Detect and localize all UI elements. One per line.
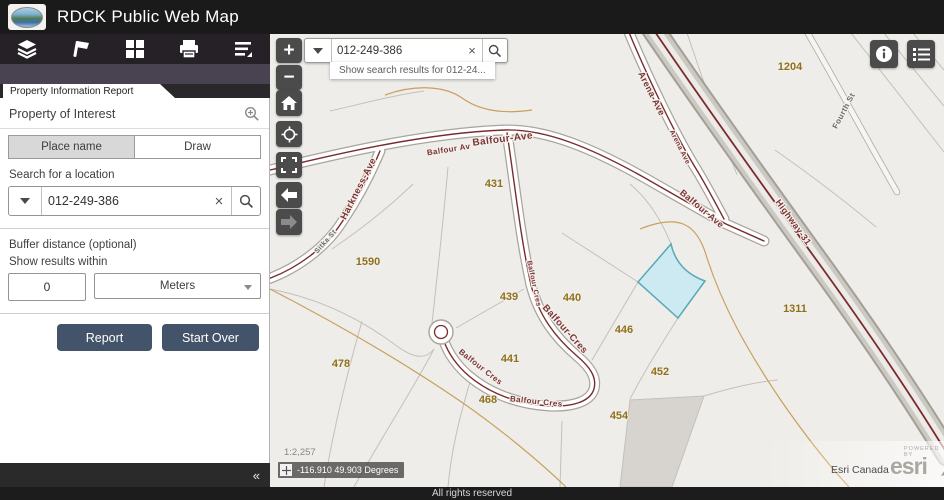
location-searchbox: × bbox=[8, 186, 261, 216]
mode-tabs: Place name Draw bbox=[8, 135, 261, 159]
previous-extent-button[interactable] bbox=[276, 182, 302, 208]
zoom-to-icon[interactable] bbox=[244, 106, 260, 122]
svg-text:454: 454 bbox=[610, 410, 629, 422]
draw-button[interactable] bbox=[64, 36, 98, 62]
caret-down-icon bbox=[20, 198, 30, 204]
basemap-button[interactable] bbox=[118, 36, 152, 62]
units-select[interactable]: Meters bbox=[94, 273, 261, 299]
back-arrow-icon bbox=[281, 188, 297, 202]
basemap-grid-icon bbox=[124, 38, 146, 60]
list-icon bbox=[913, 47, 930, 62]
rdck-logo bbox=[8, 4, 46, 30]
svg-text:440: 440 bbox=[563, 292, 581, 304]
copyright-footer: All rights reserved bbox=[0, 487, 944, 500]
svg-text:478: 478 bbox=[332, 358, 350, 370]
app-title: RDCK Public Web Map bbox=[57, 7, 239, 27]
svg-text:441: 441 bbox=[501, 353, 519, 365]
section-title: Property of Interest bbox=[9, 107, 115, 121]
forward-arrow-icon bbox=[281, 215, 297, 229]
search-icon bbox=[488, 44, 502, 58]
info-icon bbox=[875, 45, 893, 63]
search-source-dropdown[interactable] bbox=[9, 187, 42, 215]
home-button[interactable] bbox=[276, 90, 302, 116]
svg-text:1311: 1311 bbox=[783, 303, 807, 315]
map-search-input[interactable] bbox=[332, 39, 462, 62]
panel-tabbar: Property Information Report bbox=[0, 84, 270, 98]
search-submit-button[interactable] bbox=[231, 187, 260, 215]
map-search-dropdown[interactable] bbox=[305, 39, 332, 62]
units-value: Meters bbox=[160, 280, 195, 292]
panel-tab-property-information-report[interactable]: Property Information Report bbox=[3, 84, 175, 98]
map-clear-search-icon[interactable]: × bbox=[462, 39, 482, 62]
rdck-emblem-icon bbox=[11, 7, 43, 28]
tab-draw-label: Draw bbox=[184, 141, 211, 153]
tab-place-name-label: Place name bbox=[41, 141, 102, 153]
fullscreen-icon bbox=[281, 157, 297, 173]
zoom-out-button[interactable]: − bbox=[276, 65, 302, 90]
locate-icon bbox=[281, 126, 298, 143]
fullscreen-button[interactable] bbox=[276, 152, 302, 178]
report-button[interactable]: Report bbox=[57, 324, 152, 351]
svg-text:1204: 1204 bbox=[778, 61, 803, 73]
search-icon bbox=[239, 194, 254, 209]
results-label: Show results within bbox=[9, 256, 260, 268]
caret-down-icon bbox=[313, 48, 323, 54]
esri-cursor-icon bbox=[939, 465, 944, 476]
map-canvas[interactable]: Balfour-AveBalfour AvHarkness-AveSitka S… bbox=[270, 34, 944, 487]
divider bbox=[0, 313, 269, 314]
map-searchbox: × bbox=[304, 38, 508, 63]
home-icon bbox=[281, 96, 297, 111]
svg-text:439: 439 bbox=[500, 291, 518, 303]
svg-text:452: 452 bbox=[651, 366, 669, 378]
coordinate-readout: -116.910 49.903 Degrees bbox=[297, 465, 398, 475]
print-icon bbox=[178, 38, 200, 60]
draw-flag-icon bbox=[70, 38, 92, 60]
tab-place-name[interactable]: Place name bbox=[9, 136, 134, 158]
layers-icon bbox=[16, 38, 38, 60]
coordinate-widget[interactable]: -116.910 49.903 Degrees bbox=[278, 462, 404, 478]
property-report-panel: Property of Interest Place name Draw Sea… bbox=[0, 98, 270, 463]
collapse-panel-button[interactable]: « bbox=[253, 469, 260, 482]
search-suggestion[interactable]: Show search results for 012-24... bbox=[330, 62, 495, 79]
svg-text:1590: 1590 bbox=[356, 256, 380, 268]
buffer-distance-input[interactable] bbox=[8, 273, 86, 301]
map-scale: 1:2,257 bbox=[284, 447, 316, 458]
caret-down-icon bbox=[244, 285, 252, 290]
tab-draw[interactable]: Draw bbox=[134, 136, 260, 158]
legend-button[interactable] bbox=[226, 36, 260, 62]
accent-strip bbox=[0, 64, 270, 84]
zoom-in-button[interactable]: + bbox=[276, 38, 302, 63]
clear-search-icon[interactable]: × bbox=[207, 187, 231, 215]
map-search-submit-button[interactable] bbox=[482, 39, 507, 62]
search-label: Search for a location bbox=[9, 169, 260, 181]
map-container[interactable]: Balfour-AveBalfour AvHarkness-AveSitka S… bbox=[270, 34, 944, 487]
attribution-text: Esri Canada bbox=[831, 464, 889, 476]
buffer-label: Buffer distance (optional) bbox=[9, 239, 260, 251]
map-legend-button[interactable] bbox=[907, 40, 935, 68]
divider bbox=[0, 128, 269, 129]
svg-text:468: 468 bbox=[479, 394, 497, 406]
esri-logo: POWERED BY esri bbox=[890, 446, 944, 479]
location-search-input[interactable] bbox=[42, 187, 207, 215]
panel-footer: « bbox=[0, 463, 270, 487]
divider bbox=[0, 228, 269, 229]
crosshair-icon bbox=[280, 464, 292, 476]
esri-wordmark: esri bbox=[890, 453, 927, 479]
locate-button[interactable] bbox=[276, 121, 302, 147]
copyright-text: All rights reserved bbox=[432, 488, 512, 499]
svg-text:431: 431 bbox=[485, 178, 503, 190]
main-toolbar bbox=[0, 34, 270, 64]
legend-icon bbox=[232, 38, 254, 60]
print-button[interactable] bbox=[172, 36, 206, 62]
start-over-button[interactable]: Start Over bbox=[162, 324, 259, 351]
layers-button[interactable] bbox=[10, 36, 44, 62]
info-button[interactable] bbox=[870, 40, 898, 68]
panel-tab-label: Property Information Report bbox=[10, 86, 133, 97]
svg-text:446: 446 bbox=[615, 324, 633, 336]
app-header: RDCK Public Web Map bbox=[0, 0, 944, 34]
next-extent-button[interactable] bbox=[276, 209, 302, 235]
